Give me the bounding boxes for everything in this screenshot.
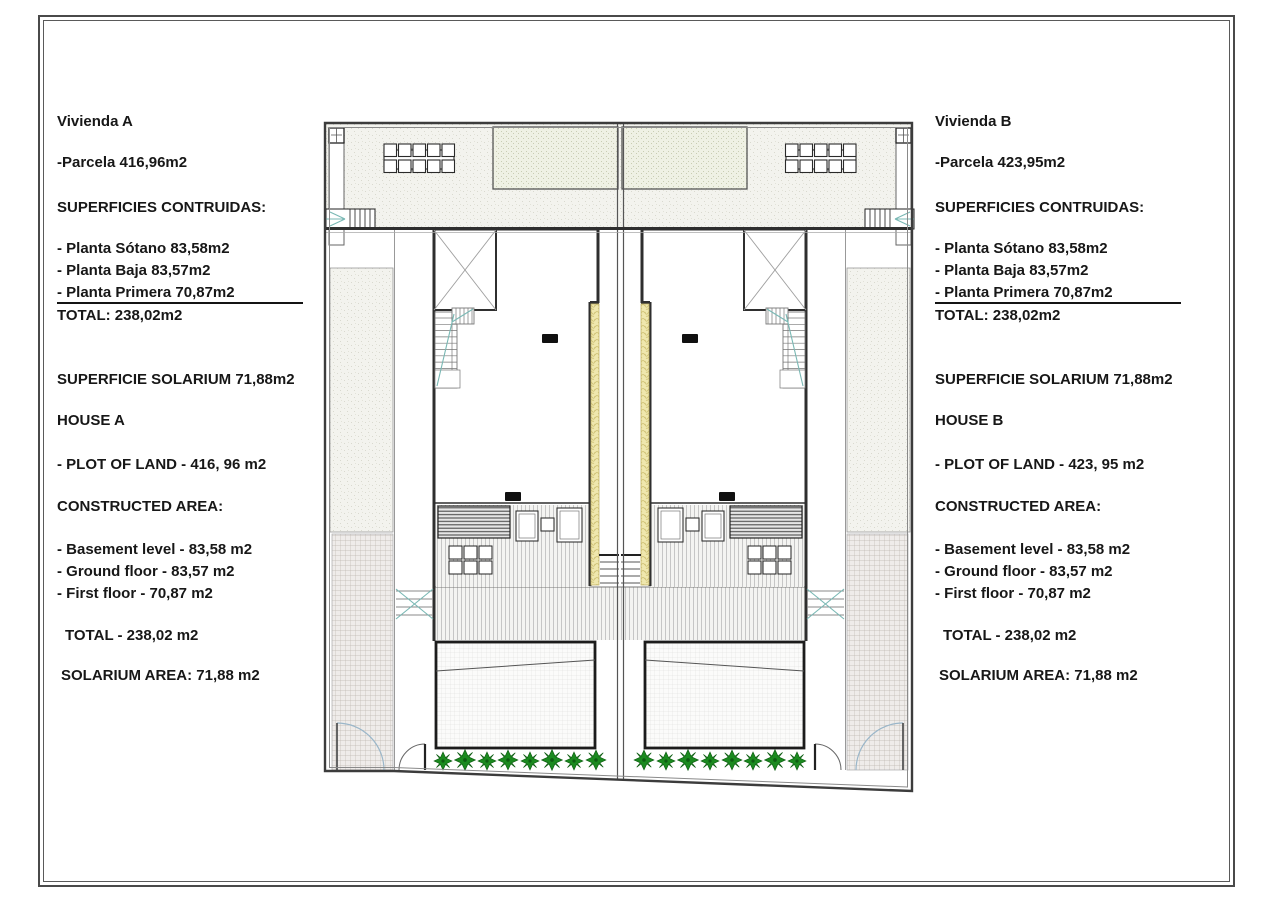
site-plan-drawing <box>0 0 1280 905</box>
shared-deck-band <box>434 587 806 640</box>
plan-document-page: { "page": { "background": "#ffffff", "fr… <box>0 0 1280 905</box>
